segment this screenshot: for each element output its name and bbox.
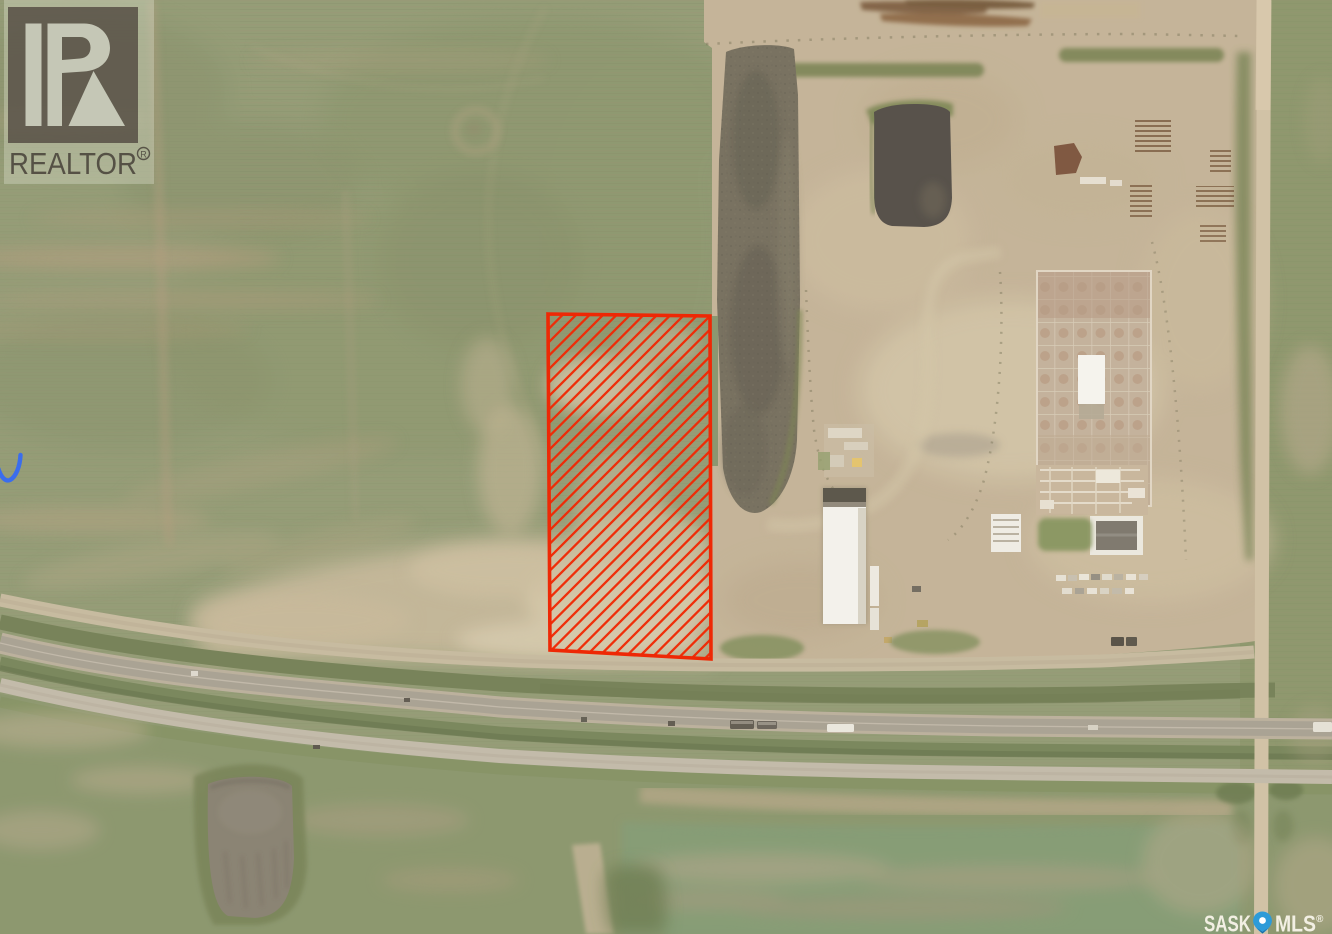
svg-text:R: R xyxy=(140,150,147,160)
svg-text:REALTOR: REALTOR xyxy=(9,146,137,181)
svg-text:SASK: SASK xyxy=(1204,911,1251,934)
svg-text:®: ® xyxy=(1316,914,1324,925)
svg-text:MLS: MLS xyxy=(1275,911,1316,934)
